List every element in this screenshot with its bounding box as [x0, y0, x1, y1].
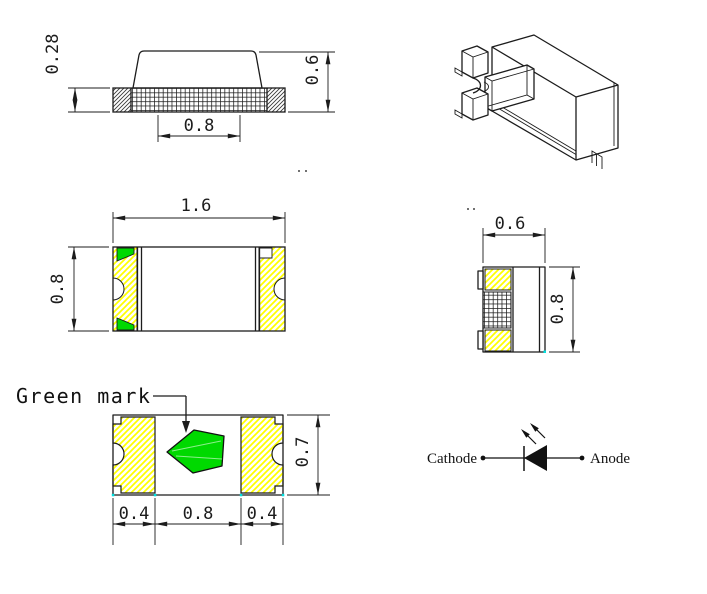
- top-terminal-right-notch: [259, 248, 272, 258]
- dim-text-08-side: 0.8: [184, 116, 215, 136]
- anode-label: Anode: [590, 451, 630, 467]
- dim-text-08-bottom: 0.8: [183, 504, 214, 524]
- dim-text-06-end: 0.6: [495, 214, 526, 234]
- defpoint: [282, 494, 285, 497]
- end-tab-upper: [478, 271, 483, 289]
- top-view: 1.6 0.8: [48, 196, 285, 331]
- end-view: 0.6 0.8: [467, 208, 580, 353]
- dim-bottom-pads: 0.4 0.8 0.4: [113, 498, 283, 545]
- bottom-view: Green mark 0.7 0.4 0.8 0.4: [16, 384, 330, 545]
- diode-triangle: [524, 445, 547, 471]
- dim-text-06-side: 0.6: [303, 55, 323, 86]
- dim-end-height: 0.8: [548, 267, 580, 352]
- dim-substrate-thickness: 0.28: [43, 34, 110, 112]
- anode-terminal-dot: [580, 456, 585, 461]
- defpoint: [240, 494, 243, 497]
- end-substrate-grid: [483, 292, 511, 328]
- side-terminal-right-hatch: [267, 88, 285, 112]
- side-substrate-grid: [131, 88, 267, 112]
- cathode-label: Cathode: [427, 451, 477, 467]
- dim-text-028: 0.28: [43, 34, 63, 75]
- dim-bottom-body-width: 0.7: [287, 415, 330, 495]
- end-pad-lower: [485, 330, 511, 351]
- green-mark-label: Green mark: [16, 384, 151, 408]
- dim-length: 1.6: [113, 196, 285, 243]
- dim-text-04-left: 0.4: [119, 504, 150, 524]
- dim-end-width: 0.6: [483, 214, 545, 263]
- tab-upper-3d: [462, 46, 488, 78]
- artifact-dot: [467, 208, 469, 210]
- defpoint: [112, 494, 115, 497]
- defpoint: [544, 351, 547, 354]
- dim-text-16: 1.6: [181, 196, 212, 216]
- dim-text-08-top: 0.8: [48, 274, 68, 305]
- circuit-symbol: Cathode Anode: [427, 423, 630, 471]
- side-body: [133, 51, 262, 88]
- defpoint: [154, 494, 157, 497]
- end-tab-lower: [478, 331, 483, 349]
- side-view: 0.28 0.6 0.8: [43, 34, 335, 172]
- dim-width-top-view: 0.8: [48, 247, 109, 331]
- end-pad-upper: [485, 269, 511, 290]
- dim-text-08-end: 0.8: [548, 294, 568, 325]
- artifact-dot: [473, 208, 475, 210]
- dim-text-07: 0.7: [293, 437, 313, 468]
- perspective-view: [455, 35, 618, 169]
- side-terminal-left-hatch: [113, 88, 131, 112]
- dim-bottom-pad: 0.8: [158, 115, 240, 142]
- led-package-drawing: 0.28 0.6 0.8: [0, 0, 707, 594]
- artifact-dot: [298, 170, 300, 172]
- artifact-dot: [305, 170, 307, 172]
- cathode-terminal-dot: [481, 456, 486, 461]
- dim-text-04-right: 0.4: [247, 504, 278, 524]
- light-arrows-icon: [521, 423, 545, 444]
- drawing-svg: 0.28 0.6 0.8: [0, 0, 707, 594]
